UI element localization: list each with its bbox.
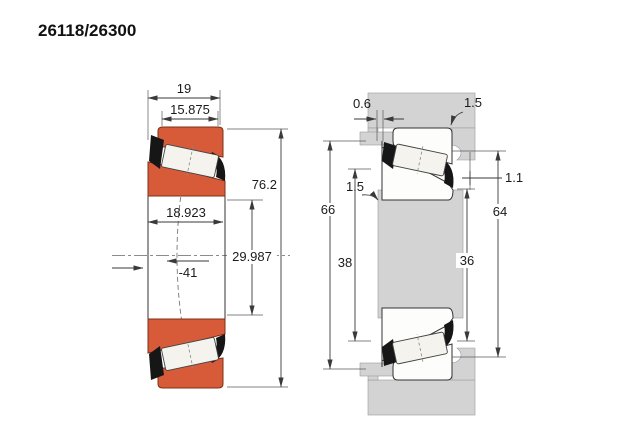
bearing-drawing-page: 26118/26300 19 15.875 [0, 0, 640, 440]
page-title: 26118/26300 [38, 21, 136, 40]
bearing-unit-top [148, 127, 225, 196]
bearing-cross-section-view: 19 15.875 76.2 18.923 29.987 [112, 81, 290, 388]
dim-load-center: -41 [112, 261, 209, 280]
dim-bore-diameter-label: 29.987 [232, 249, 272, 264]
housing-section-top [368, 93, 475, 128]
dim-shaft-backing-label: 36 [460, 253, 474, 268]
shaft-section [378, 190, 463, 318]
dim-bore-diameter: 29.987 [227, 200, 277, 315]
dim-cup-width: 15.875 [162, 102, 218, 126]
dim-assembled-width-label: 18.923 [166, 205, 206, 220]
dim-housing-abutment-label: 66 [321, 202, 335, 217]
dim-shaft-fillet: 1.5 [346, 179, 378, 200]
bearing-drawing: 26118/26300 19 15.875 [0, 0, 640, 440]
mounting-arrangement-view: 0.6 1.5 1.5 66 38 [318, 93, 523, 415]
mounted-bearing-bottom [382, 308, 454, 380]
dim-load-center-label: -41 [179, 265, 198, 280]
dim-cone-width-label: 19 [177, 81, 191, 96]
abutment-collar-bottom [360, 363, 394, 376]
dim-housing-fillet-label: 1.5 [464, 95, 482, 110]
housing-shoulder-bottom-right [452, 348, 475, 380]
bearing-unit-bottom [148, 319, 225, 388]
dim-outer-diameter-label: 76.2 [252, 177, 277, 192]
housing-shoulder-top-right [452, 128, 475, 160]
dim-cup-width-label: 15.875 [170, 102, 210, 117]
housing-section-bottom [368, 380, 475, 415]
dim-axial-displacement-label: 1.1 [505, 170, 523, 185]
dim-side-face-gap-label: 0.6 [353, 96, 371, 111]
dim-shaft-abutment-label: 38 [338, 255, 352, 270]
dim-assembled-width: 18.923 [148, 205, 223, 222]
mounted-bearing-top [382, 128, 454, 200]
dim-housing-backing-label: 64 [493, 204, 507, 219]
